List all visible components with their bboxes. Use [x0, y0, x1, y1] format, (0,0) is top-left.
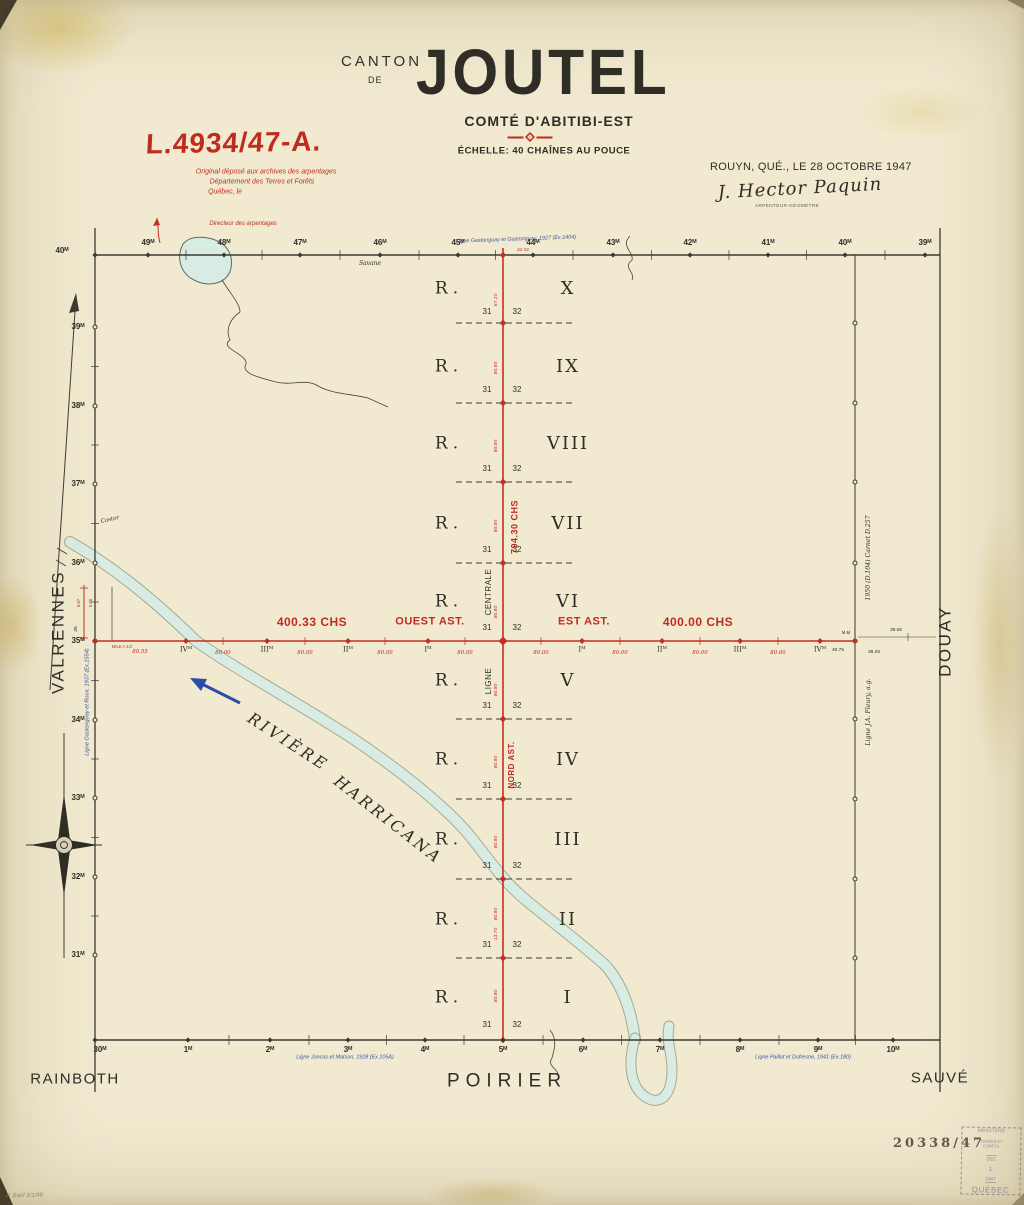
baseline-segment-length: 80.00 — [533, 650, 548, 655]
lot-number-left: 31 — [483, 862, 492, 870]
range-chain-length: 80.80 — [494, 990, 499, 1002]
mile-label-bottom: 3ᴹ — [344, 1046, 353, 1054]
lot-number-left: 31 — [483, 546, 492, 554]
mile-label-top: 40ᴹ — [55, 247, 68, 255]
mile-label-top: 39ᴹ — [918, 239, 931, 247]
baseline-segment-length: 80.00 — [612, 650, 627, 655]
range-chain-length: 80.80 — [494, 836, 499, 848]
mile-label-left: 37ᴹ — [71, 480, 84, 488]
mile-label-bottom: 30ᴹ — [93, 1046, 106, 1054]
range-numeral: II — [559, 911, 577, 929]
survey-map-sheet: CANTON DE JOUTEL COMTÉ D'ABITIBI-EST ÉCH… — [0, 0, 1024, 1205]
range-chain-length: 80.80 — [494, 520, 499, 532]
lot-number-left: 31 — [483, 624, 492, 632]
mile-label-top: 41ᴹ — [761, 239, 774, 247]
range-prefix: R. — [435, 516, 463, 533]
range-prefix: R. — [435, 359, 463, 376]
mile-label-bottom: 1ᴹ — [184, 1046, 193, 1054]
lot-number-right: 32 — [513, 1021, 522, 1029]
range-numeral: V — [561, 672, 576, 690]
baseline-segment-length: 80.00 — [770, 650, 785, 655]
lot-number-left: 31 — [483, 782, 492, 790]
lot-number-left: 31 — [483, 1021, 492, 1029]
mile-label-top: 44ᴹ — [526, 239, 539, 247]
range-numeral: IV — [556, 751, 580, 769]
mile-label-left: 38ᴹ — [71, 402, 84, 410]
lot-number-left: 31 — [483, 941, 492, 949]
range-chain-length: 80.80 — [494, 606, 499, 618]
baseline-post-east: IIᴹ — [657, 647, 667, 654]
range-chain-length: 80.80 — [494, 362, 499, 374]
range-prefix: R. — [435, 752, 463, 769]
mile-label-top: 40ᴹ — [838, 239, 851, 247]
baseline-segment-length: 80.00 — [297, 650, 312, 655]
lot-number-left: 31 — [483, 702, 492, 710]
range-numeral: VI — [556, 593, 580, 611]
baseline-segment-length: 80.00 — [692, 650, 707, 655]
lot-number-left: 31 — [483, 465, 492, 473]
mile-label-left: 31ᴹ — [71, 951, 84, 959]
range-numeral: VIII — [547, 435, 589, 453]
mile-label-bottom: 4ᴹ — [421, 1046, 430, 1054]
mile-label-top: 46ᴹ — [373, 239, 386, 247]
lot-number-right: 32 — [513, 862, 522, 870]
mile-label-bottom: 5ᴹ — [499, 1046, 508, 1054]
mile-label-left: 34ᴹ — [71, 716, 84, 724]
mile-label-bottom: 2ᴹ — [266, 1046, 275, 1054]
range-prefix: R. — [435, 832, 463, 849]
generated-labels: 40ᴹ49ᴹ48ᴹ47ᴹ46ᴹ45ᴹ44ᴹ43ᴹ42ᴹ41ᴹ40ᴹ39ᴹ39ᴹ3… — [0, 0, 1024, 1205]
mile-label-bottom: 8ᴹ — [736, 1046, 745, 1054]
mile-label-left: 32ᴹ — [71, 873, 84, 881]
baseline-post-west: IIIᴹ — [261, 647, 274, 654]
range-numeral: X — [561, 280, 576, 298]
range-prefix: R. — [435, 281, 463, 298]
mile-label-top: 47ᴹ — [293, 239, 306, 247]
mile-label-top: 49ᴹ — [141, 239, 154, 247]
mile-label-bottom: 9ᴹ — [814, 1046, 823, 1054]
range-chain-length: 67.10 — [494, 294, 499, 306]
range-prefix: R. — [435, 594, 463, 611]
range-numeral: III — [554, 831, 581, 849]
lot-number-right: 32 — [513, 702, 522, 710]
range-prefix: R. — [435, 436, 463, 453]
baseline-post-west: IVᴹ — [180, 647, 192, 654]
baseline-segment-length: 80.00 — [457, 650, 472, 655]
baseline-post-east: Iᴹ — [578, 647, 585, 654]
mile-label-left: 33ᴹ — [71, 794, 84, 802]
lot-number-right: 32 — [513, 465, 522, 473]
range-chain-length: 80.80 — [494, 756, 499, 768]
mile-label-left: 39ᴹ — [71, 323, 84, 331]
range-prefix: R. — [435, 912, 463, 929]
range-numeral: I — [563, 989, 572, 1007]
mile-label-left: 35ᴹ — [71, 637, 84, 645]
mile-label-top: 48ᴹ — [217, 239, 230, 247]
mile-label-bottom: 6ᴹ — [579, 1046, 588, 1054]
mile-label-top: 43ᴹ — [606, 239, 619, 247]
lot-number-right: 32 — [513, 624, 522, 632]
lot-number-right: 32 — [513, 308, 522, 316]
range-chain-length: 80.80 — [494, 440, 499, 452]
lot-number-right: 32 — [513, 941, 522, 949]
lot-number-right: 32 — [513, 386, 522, 394]
mile-label-bottom: 10ᴹ — [886, 1046, 899, 1054]
range-chain-length: 80.80 — [494, 684, 499, 696]
baseline-post-west: Iᴹ — [424, 647, 431, 654]
mile-label-bottom: 7ᴹ — [656, 1046, 665, 1054]
lot-number-right: 32 — [513, 782, 522, 790]
mile-label-left: 36ᴹ — [71, 559, 84, 567]
baseline-post-east: IIIᴹ — [734, 647, 747, 654]
baseline-post-east: IVᴹ — [814, 647, 826, 654]
mile-label-top: 45ᴹ — [451, 239, 464, 247]
range-prefix: R. — [435, 673, 463, 690]
baseline-segment-length: 80.00 — [215, 650, 230, 655]
range-chain-length: 80.80 — [494, 908, 499, 920]
lot-number-left: 31 — [483, 386, 492, 394]
range-numeral: IX — [556, 358, 580, 376]
lot-number-right: 32 — [513, 546, 522, 554]
baseline-post-west: IIᴹ — [343, 647, 353, 654]
baseline-segment-length: 80.00 — [377, 650, 392, 655]
lot-number-left: 31 — [483, 308, 492, 316]
mile-label-top: 42ᴹ — [683, 239, 696, 247]
range-numeral: VII — [551, 515, 584, 533]
range-prefix: R. — [435, 990, 463, 1007]
